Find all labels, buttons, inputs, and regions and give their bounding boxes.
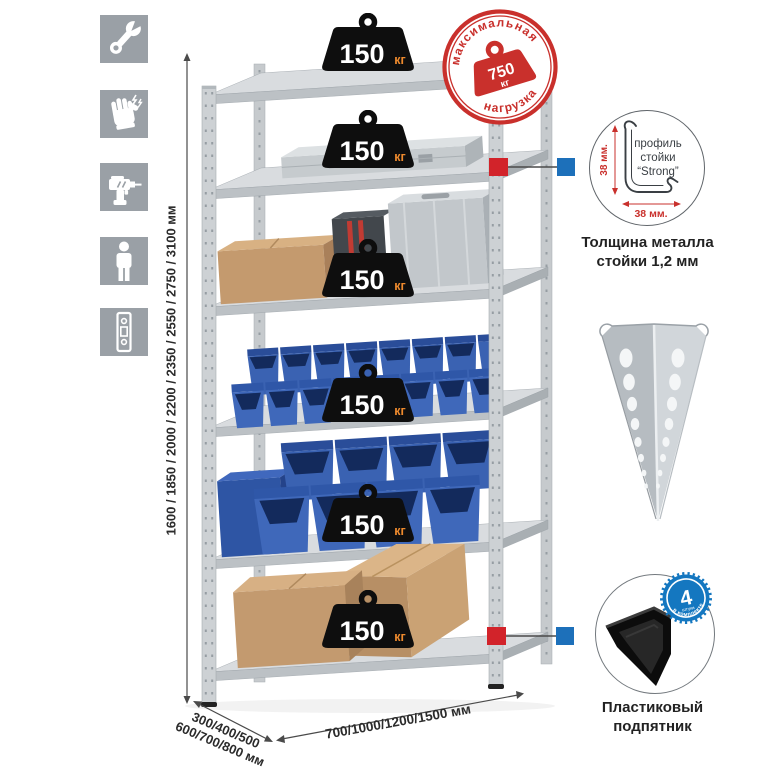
badge-value: 150 — [339, 39, 384, 69]
svg-text:150: 150 — [339, 390, 384, 420]
shelving-product-infographic: { "colors": { "accent_red": "#c9302c", "… — [0, 0, 765, 765]
shelf-load-badge-5: 150 кг — [316, 484, 420, 544]
profile-caption-line2: стойки 1,2 мм — [565, 252, 730, 271]
svg-text:кг: кг — [394, 630, 405, 644]
height-dimension-line — [184, 53, 191, 704]
foot-caption: Пластиковый подпятник — [570, 698, 735, 736]
shelf-load-badge-4: 150 кг — [316, 364, 420, 424]
svg-text:кг: кг — [394, 150, 405, 164]
svg-text:150: 150 — [339, 510, 384, 540]
shelf-load-badge-3: 150 кг — [316, 239, 420, 299]
foot-caption-line1: Пластиковый — [570, 698, 735, 717]
profile-caption: Толщина металла стойки 1,2 мм — [565, 233, 730, 271]
foot-caption-line2: подпятник — [570, 717, 735, 736]
shelf-load-badge-6: 150 кг — [316, 590, 420, 650]
included-count-badge: 4 штуки в комплекте — [655, 567, 717, 629]
height-dimension-label: 1600 / 1850 / 2000 / 2200 / 2350 / 2550 … — [164, 191, 179, 551]
profile-caption-line1: Толщина металла — [565, 233, 730, 252]
svg-text:кг: кг — [394, 404, 405, 418]
shelf-load-badge-2: 150 кг — [316, 110, 420, 170]
post-profile-image — [582, 306, 722, 534]
svg-text:кг: кг — [394, 524, 405, 538]
shelf-load-badge-1: 150 кг — [316, 13, 420, 73]
badge-hook-icon — [362, 16, 375, 29]
svg-text:150: 150 — [339, 136, 384, 166]
svg-text:кг: кг — [394, 279, 405, 293]
svg-text:150: 150 — [339, 265, 384, 295]
badge-unit: кг — [394, 53, 405, 67]
svg-text:150: 150 — [339, 616, 384, 646]
